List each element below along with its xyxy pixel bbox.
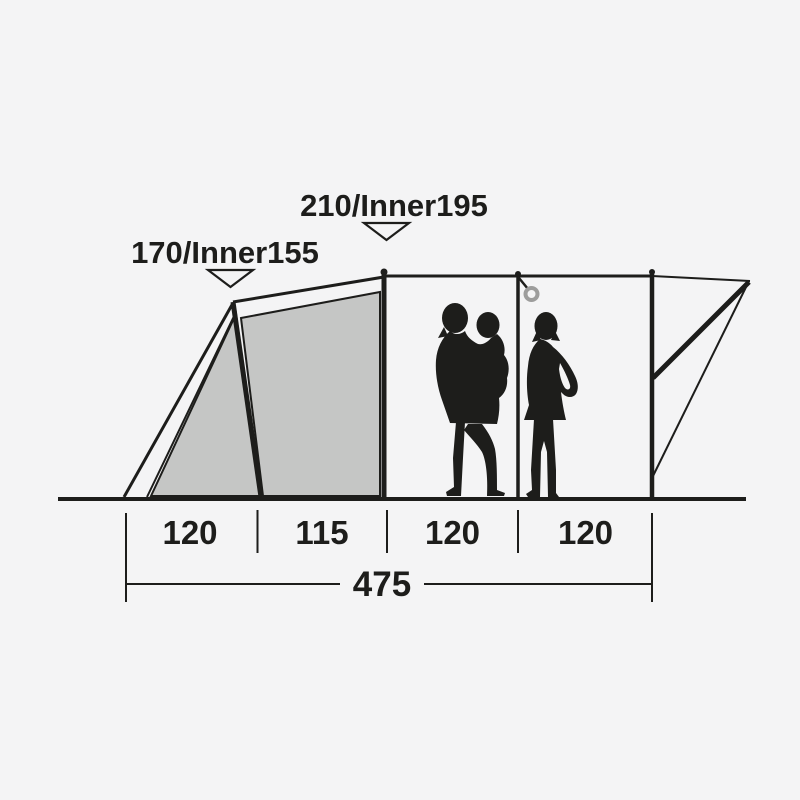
segment-label-2: 115 <box>295 514 348 551</box>
adult-child-body <box>436 331 509 424</box>
rear-pole-cap <box>649 269 655 275</box>
cabin-divider-cap <box>515 271 521 277</box>
total-width-label: 475 <box>353 565 411 604</box>
main-pole-cap <box>381 269 388 276</box>
height-label-main: 210/Inner195 <box>300 188 488 223</box>
height-label-front: 170/Inner155 <box>131 235 319 270</box>
segment-label-1: 120 <box>162 514 217 551</box>
adult-head <box>442 303 468 333</box>
segment-label-3: 120 <box>425 514 480 551</box>
diagram-background <box>0 0 800 800</box>
tent-dimension-diagram: 170/Inner155 210/Inner195 120 115 120 12… <box>0 0 800 800</box>
child-head <box>477 312 500 338</box>
diagram-canvas: 170/Inner155 210/Inner195 120 115 120 12… <box>0 0 800 800</box>
segment-label-4: 120 <box>558 514 613 551</box>
fabric-panel-inner-quad <box>241 292 380 496</box>
